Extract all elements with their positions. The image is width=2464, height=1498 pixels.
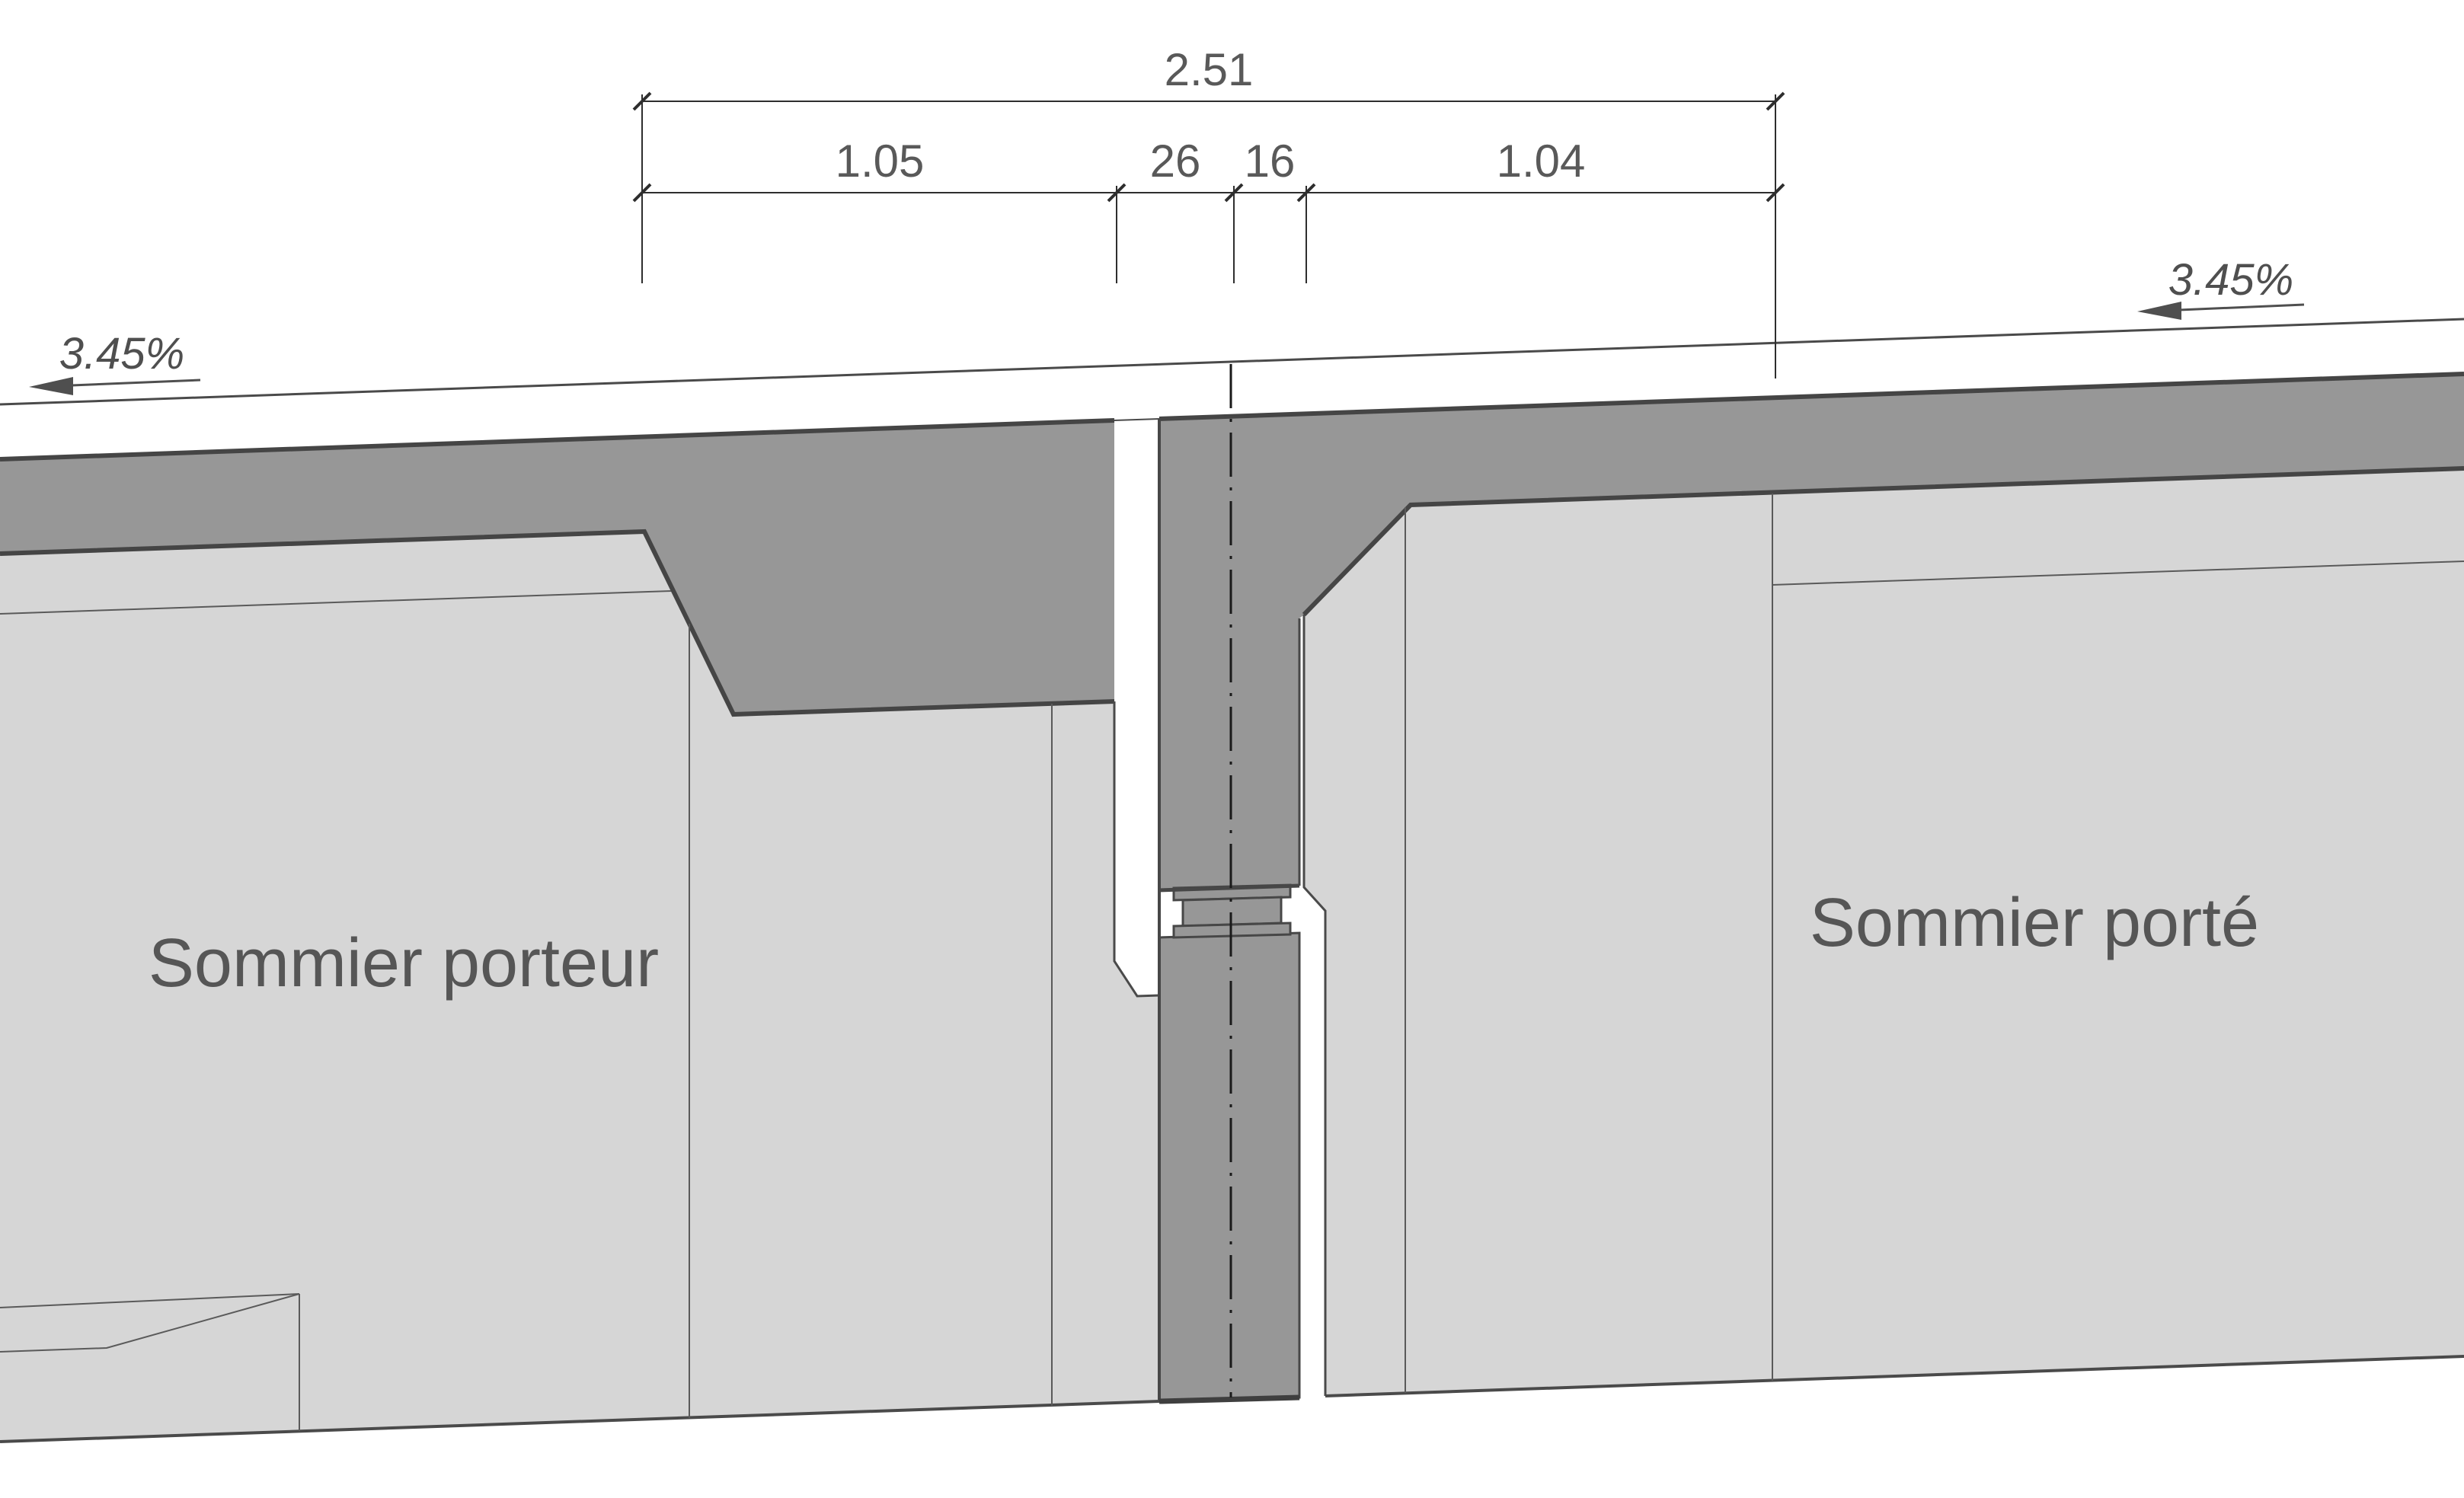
dimension-ticks (634, 93, 1784, 201)
dim-seg-mid2: 16 (1245, 136, 1296, 187)
slab-top-gap-line (1114, 419, 1159, 420)
slope-annotation-left: 3.45% (29, 329, 200, 395)
slope-right-arrowhead-icon (2137, 302, 2181, 320)
dimension-block (634, 93, 1784, 378)
joint-gap-left-face (1114, 701, 1159, 996)
dim-seg-left: 1.05 (836, 136, 925, 187)
slope-right-arrow-line (2162, 305, 2304, 311)
slope-left-arrowhead-icon (29, 377, 73, 395)
dim-seg-mid1: 26 (1150, 136, 1201, 187)
lower-column (1159, 933, 1299, 1401)
drawing-page: 2.51 1.05 26 16 1.04 3.45% 3.45% Sommier… (0, 0, 2464, 1498)
section-drawing: 2.51 1.05 26 16 1.04 3.45% 3.45% Sommier… (0, 0, 2464, 1498)
slope-annotation-right: 3.45% (2137, 255, 2304, 320)
bottom-edge-column (1159, 1397, 1299, 1401)
dim-total: 2.51 (1165, 44, 1254, 95)
label-sommier-porteur: Sommier porteur (149, 925, 659, 1001)
slope-left-label: 3.45% (59, 329, 184, 378)
label-sommier-porte: Sommier porté (1810, 885, 2259, 961)
dim-seg-right: 1.04 (1497, 136, 1586, 187)
slope-right-label: 3.45% (2168, 255, 2293, 305)
slope-left-arrow-line (53, 380, 200, 386)
